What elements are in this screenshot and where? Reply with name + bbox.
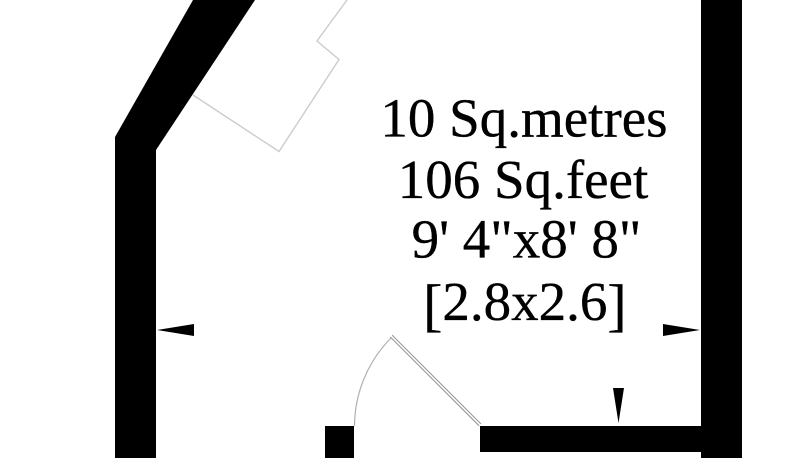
svg-text:106 Sq.feet: 106 Sq.feet (398, 149, 649, 210)
svg-text:9' 4"x8' 8": 9' 4"x8' 8" (412, 208, 642, 269)
svg-text:10 Sq.metres: 10 Sq.metres (380, 88, 667, 149)
svg-text:[2.8x2.6]: [2.8x2.6] (423, 271, 627, 338)
